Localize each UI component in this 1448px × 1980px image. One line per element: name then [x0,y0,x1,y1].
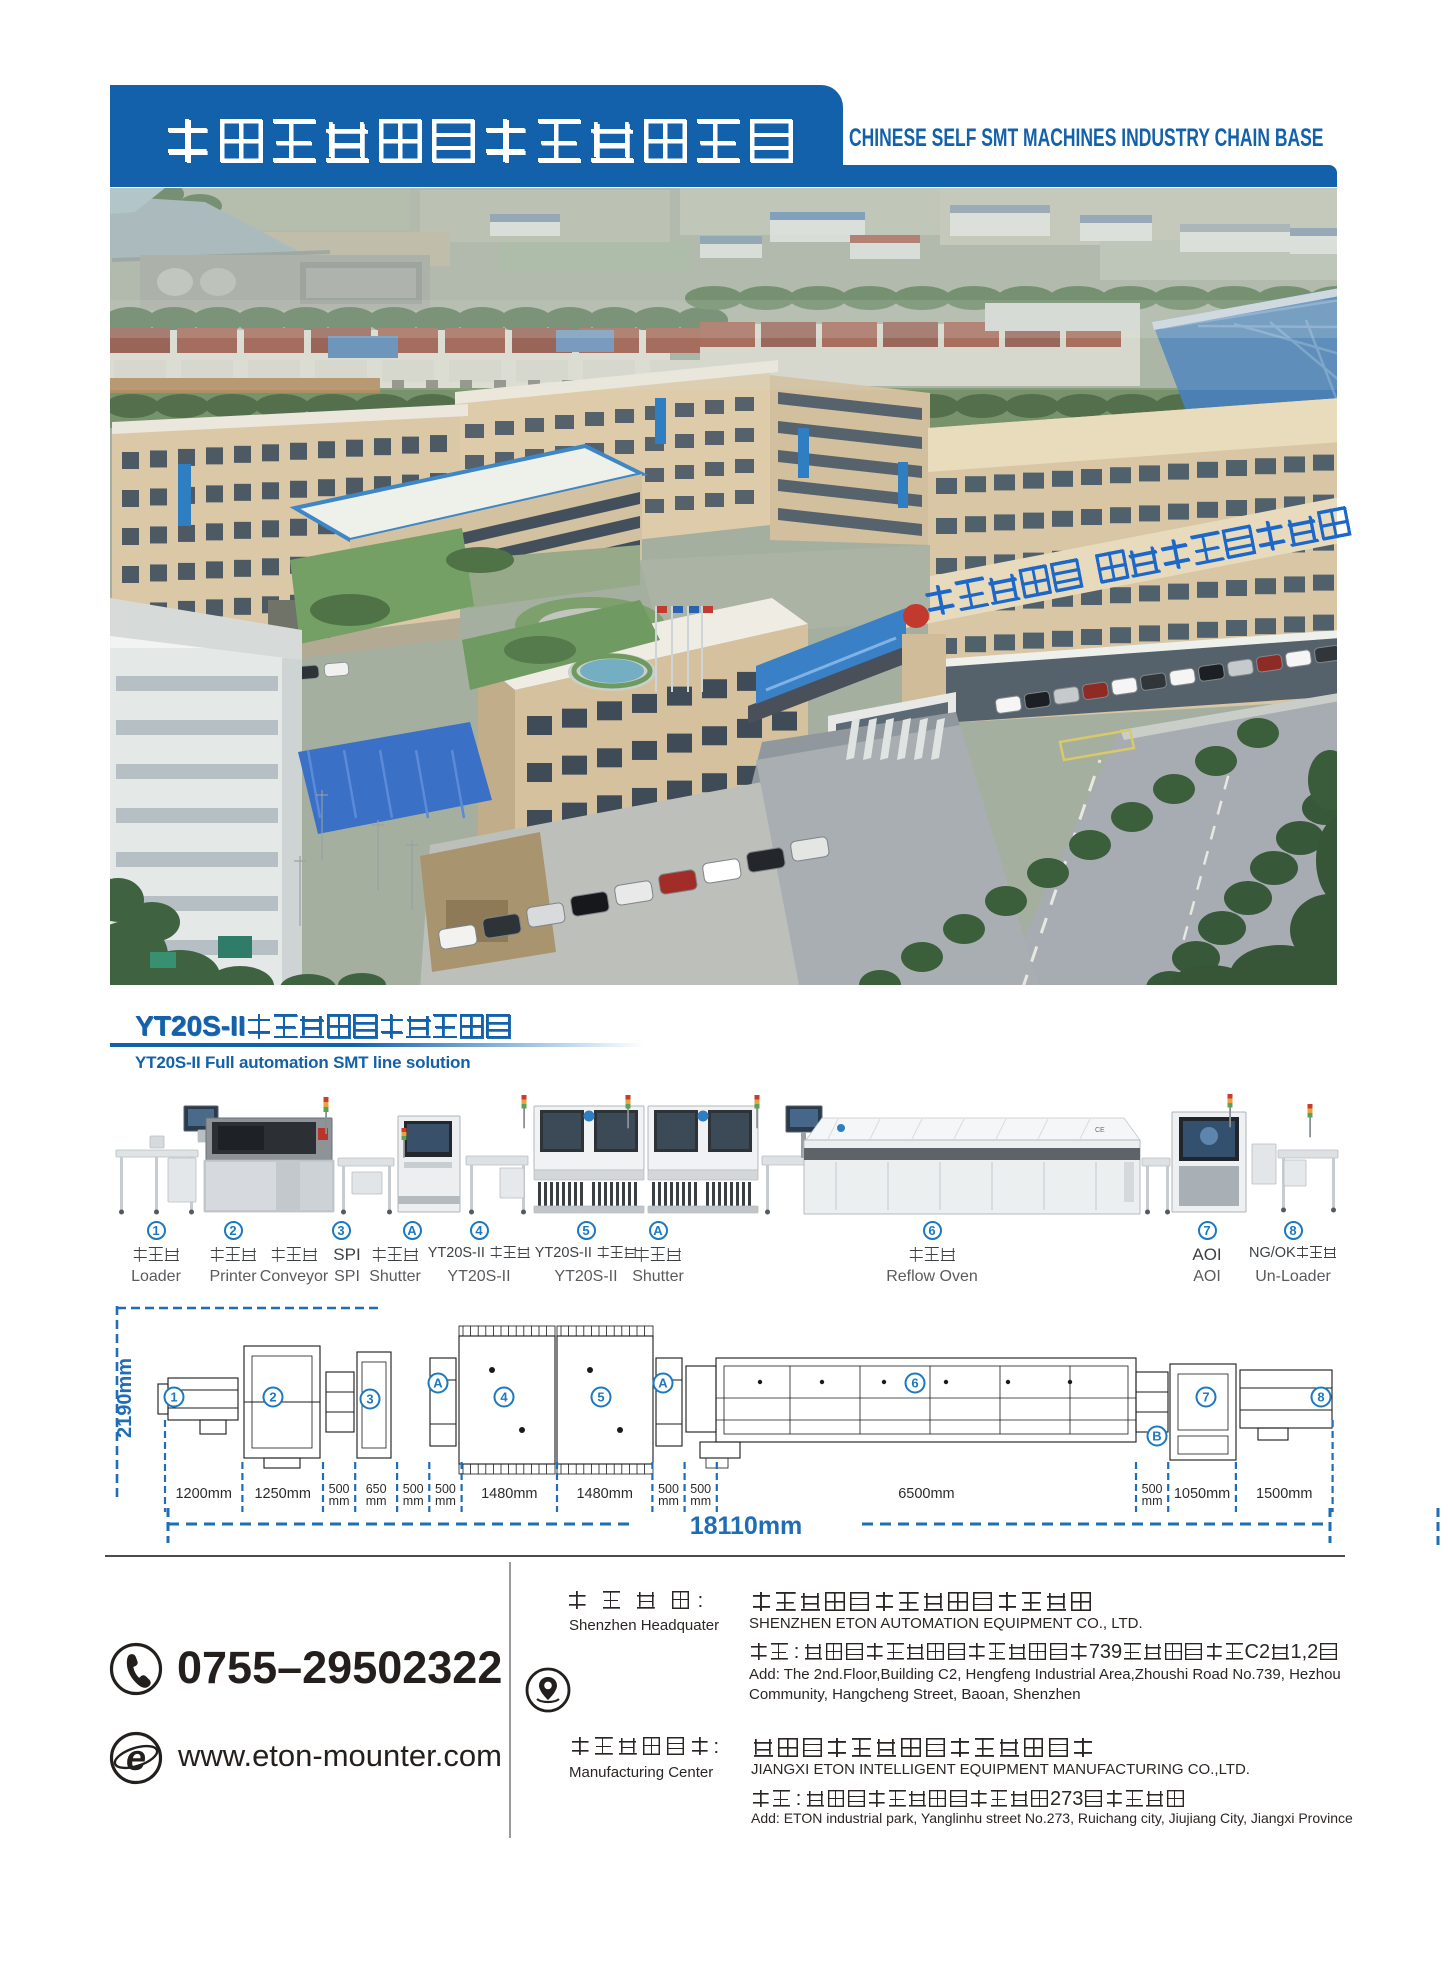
svg-text:2: 2 [269,1390,276,1405]
svg-text:1250mm: 1250mm [254,1486,310,1502]
svg-text:5: 5 [597,1390,604,1405]
svg-text:1500mm: 1500mm [1256,1486,1312,1502]
svg-text:1480mm: 1480mm [576,1486,632,1502]
svg-text:2190mm: 2190mm [114,1358,136,1438]
svg-text:1480mm: 1480mm [481,1486,537,1502]
svg-text:18110mm: 18110mm [690,1512,803,1540]
svg-text:mm: mm [1142,1494,1163,1508]
svg-text:B: B [1152,1429,1161,1444]
svg-text:mm: mm [658,1494,679,1508]
svg-text:8: 8 [1317,1390,1324,1405]
svg-text:1: 1 [170,1390,177,1405]
svg-text:A: A [433,1376,443,1391]
svg-text:1050mm: 1050mm [1174,1486,1230,1502]
svg-text:mm: mm [435,1494,456,1508]
svg-text:4: 4 [500,1390,508,1405]
svg-text:e: e [126,1737,146,1778]
svg-text:mm: mm [690,1494,711,1508]
svg-text:3: 3 [366,1392,373,1407]
svg-text:7: 7 [1202,1390,1209,1405]
svg-text:6500mm: 6500mm [898,1486,954,1502]
svg-text:mm: mm [403,1494,424,1508]
svg-text:6: 6 [911,1376,918,1391]
svg-text:mm: mm [329,1494,350,1508]
svg-text:A: A [658,1376,668,1391]
svg-text:CE: CE [1095,1127,1105,1134]
svg-text:mm: mm [366,1494,387,1508]
svg-text:1200mm: 1200mm [175,1486,231,1502]
